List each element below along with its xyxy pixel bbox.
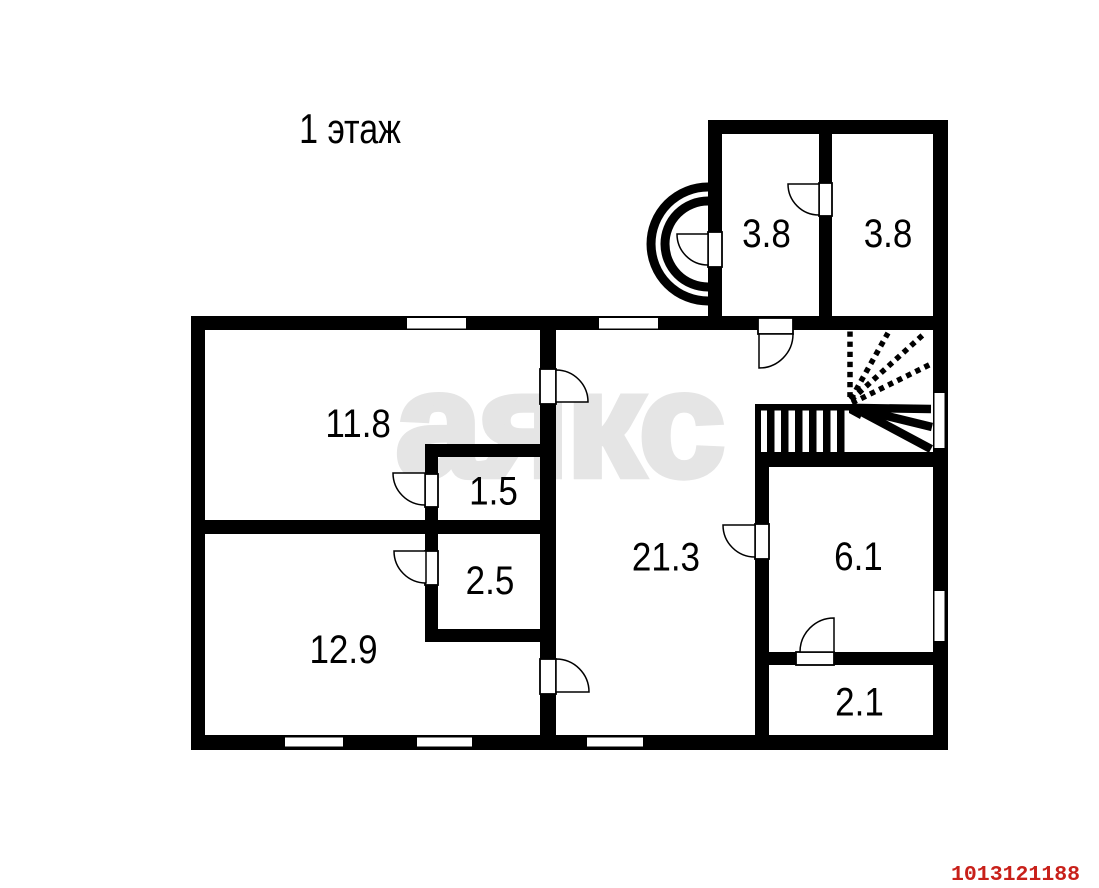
svg-text:21.3: 21.3 [632, 534, 700, 579]
svg-text:2.1: 2.1 [835, 679, 884, 724]
svg-text:1 этаж: 1 этаж [299, 106, 401, 153]
svg-text:1013121188: 1013121188 [951, 863, 1080, 887]
svg-text:аякс: аякс [396, 341, 722, 508]
svg-text:3.8: 3.8 [742, 211, 791, 256]
svg-text:11.8: 11.8 [325, 401, 391, 446]
svg-text:2.5: 2.5 [466, 558, 515, 603]
svg-text:6.1: 6.1 [834, 534, 883, 579]
svg-text:12.9: 12.9 [309, 627, 377, 672]
svg-text:1.5: 1.5 [469, 468, 518, 513]
svg-text:3.8: 3.8 [864, 211, 913, 256]
